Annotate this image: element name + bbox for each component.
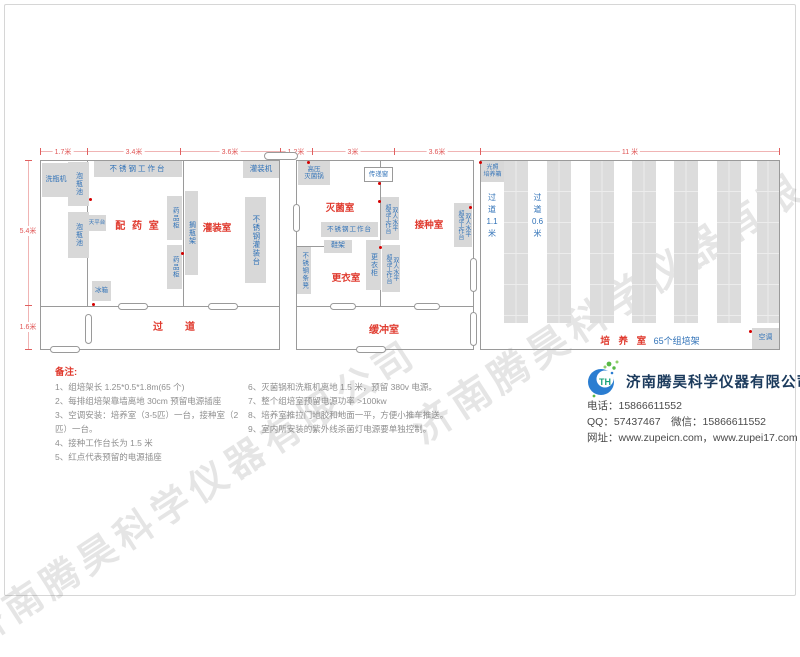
room-label-buffer: 缓冲室	[362, 321, 406, 336]
dimension-tick	[25, 349, 32, 350]
dimension-tick	[480, 148, 481, 155]
notes-section: 备注:	[55, 364, 77, 381]
clean-bench-box: 双人水平 超净工作台	[382, 245, 400, 292]
room-label-filling: 灌装室	[196, 220, 238, 234]
steel-bench-seat-box: 不锈钢条凳	[297, 247, 311, 294]
power-outlet-dot	[469, 206, 472, 209]
dim-label: 3.6米	[220, 147, 241, 157]
dim-label: 11 米	[620, 147, 640, 157]
balance-table-box: 天平台	[88, 215, 106, 231]
soaking-pool-box: 泡瓶池	[68, 212, 89, 258]
floor-plan: 济南腾昊科学仪器有限公司 济南腾昊科学仪器有限公司 1.7米 3.4米 3.6米…	[0, 0, 800, 600]
soaking-pool-box: 泡瓶池	[68, 162, 89, 206]
room-label-culture: 培 养 室	[600, 336, 649, 347]
wall	[40, 306, 280, 307]
culture-rack-column	[674, 161, 698, 323]
autoclave-box: 高压 灭菌锅	[298, 161, 330, 185]
power-outlet-dot	[378, 182, 381, 185]
note-item: 6、灭菌锅和洗瓶机离地 1.5 米，预留 380v 电源。	[248, 380, 478, 394]
notes-column-1: 1、组培架长 1.25*0.5*1.8m(65 个) 2、每排组培架靠墙离地 3…	[55, 380, 245, 464]
dim-label: 1.6米	[18, 322, 39, 332]
clean-bench-box: 双人水平 超净工作台	[381, 197, 399, 240]
room-label-sterilize: 灭菌室	[320, 200, 360, 214]
note-item: 7、整个组培室预留电源功率 >100kw	[248, 394, 478, 408]
power-outlet-dot	[181, 252, 184, 255]
wall	[183, 160, 184, 306]
power-outlet-dot	[307, 161, 310, 164]
wall	[296, 306, 474, 307]
door-icon	[208, 303, 238, 310]
culture-rack-column	[757, 161, 779, 323]
rack-count-label: 65个组培架	[654, 336, 700, 346]
dimension-tick	[40, 148, 41, 155]
culture-room-caption: 培 养 室 65个组培架	[565, 331, 735, 349]
air-conditioner-box: 空调	[752, 328, 779, 349]
dimension-tick	[25, 160, 32, 161]
room-label-inoculate: 接种室	[408, 217, 450, 231]
medicine-cabinet-box: 药品柜	[167, 245, 182, 289]
medicine-cabinet-box: 药品柜	[167, 196, 182, 240]
aisle-label: 过 道 1.1 米	[480, 192, 504, 240]
door-icon	[414, 303, 440, 310]
culture-rack-column	[504, 161, 528, 323]
company-logo: TH	[585, 358, 623, 400]
aisle-label: 过 道 0.6 米	[528, 192, 547, 240]
dim-label: 5.4米	[18, 226, 39, 236]
door-icon	[85, 314, 92, 344]
power-outlet-dot	[89, 198, 92, 201]
dimension-tick	[394, 148, 395, 155]
notes-title: 备注:	[55, 364, 77, 378]
note-item: 4、接种工作台长为 1.5 米	[55, 436, 245, 450]
company-website: 网址：www.zupeicn.com，www.zupei17.com	[587, 430, 798, 445]
door-icon	[470, 258, 477, 292]
steel-filling-table-box: 不锈钢灌装台	[245, 197, 266, 283]
door-icon	[330, 303, 356, 310]
note-item: 1、组培架长 1.25*0.5*1.8m(65 个)	[55, 380, 245, 394]
fridge-box: 冰箱	[92, 281, 111, 301]
dimension-tick	[25, 305, 32, 306]
power-outlet-dot	[749, 330, 752, 333]
note-item: 5、红点代表预留的电源插座	[55, 450, 245, 464]
dim-label: 3.4米	[124, 147, 145, 157]
room-label-corridor: 过 道	[142, 318, 212, 333]
door-icon	[293, 204, 300, 232]
dimension-tick	[87, 148, 88, 155]
power-outlet-dot	[379, 246, 382, 249]
note-item: 8、培养室推拉门地胶和地面一平，方便小推车推送。	[248, 408, 478, 422]
dimension-tick	[779, 148, 780, 155]
door-icon	[470, 312, 477, 346]
culture-rack-column	[547, 161, 571, 323]
dimension-tick	[180, 148, 181, 155]
power-outlet-dot	[378, 200, 381, 203]
filling-machine-box: 灌装机	[243, 161, 279, 178]
dim-label: 1.7米	[53, 147, 74, 157]
shoe-rack-box: 鞋架	[324, 240, 352, 253]
clean-bench-box: 双人水平 超净工作台	[454, 203, 472, 247]
passage-icon	[264, 152, 298, 160]
power-outlet-dot	[479, 161, 482, 164]
steel-workbench-box: 不锈钢工作台	[94, 161, 182, 177]
dim-label: 3.6米	[427, 147, 448, 157]
steel-workbench-box: 不锈钢工作台	[321, 222, 378, 237]
door-icon	[356, 346, 386, 353]
company-qq-wechat: QQ：57437467 微信：15866611552	[587, 414, 766, 429]
dimension-tick	[312, 148, 313, 155]
room-label-changing: 更衣室	[328, 270, 364, 284]
bottle-washer-box: 洗瓶机	[42, 163, 70, 197]
culture-rack-column	[632, 161, 656, 323]
note-item: 2、每排组培架靠墙离地 30cm 预留电源插座	[55, 394, 245, 408]
pass-through-window-box: 传递窗	[364, 167, 393, 182]
light-incubator-box: 光照 培养箱	[481, 161, 504, 182]
note-item: 9、室内所安装的紫外线杀菌灯电源要单独控制。	[248, 422, 478, 436]
culture-rack-column	[590, 161, 614, 323]
door-icon	[50, 346, 80, 353]
company-phone: 电话：15866611552	[587, 398, 682, 413]
door-icon	[118, 303, 148, 310]
culture-rack-column	[717, 161, 741, 323]
notes-column-2: 6、灭菌锅和洗瓶机离地 1.5 米，预留 380v 电源。 7、整个组培室预留电…	[248, 380, 478, 436]
logo-monogram: TH	[599, 377, 611, 387]
power-outlet-dot	[92, 303, 95, 306]
note-item: 3、空调安装：培养室（3-5匹）一台，接种室（2匹）一台。	[55, 408, 245, 436]
dim-label: 3米	[346, 147, 361, 157]
dimension-line-top	[40, 151, 780, 152]
company-block: TH 济南腾昊科学仪器有限公司 电话：15866611552 QQ：574374…	[585, 358, 623, 405]
company-name: 济南腾昊科学仪器有限公司	[626, 371, 800, 392]
room-label-prep: 配 药 室	[108, 217, 168, 232]
